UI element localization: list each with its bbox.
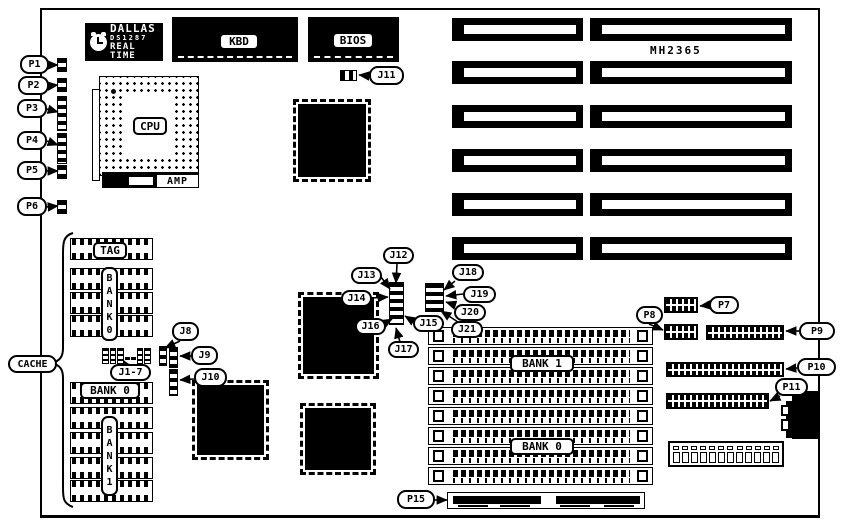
callout-j13: J13 <box>351 267 382 284</box>
p4-connector <box>57 133 67 164</box>
callout-p9: P9 <box>799 322 835 340</box>
amp-window <box>129 177 153 185</box>
memory-bank1-label: BANK 1 <box>510 355 574 372</box>
isa-slot-segment <box>590 105 792 128</box>
simm-pins <box>453 390 630 397</box>
p1-connector <box>57 58 67 72</box>
simm-latch <box>637 370 648 382</box>
callout-p11: P11 <box>775 378 808 396</box>
simm-latch <box>433 370 444 382</box>
cache-bank0-label: BANK 0 <box>80 382 140 399</box>
chip-pin1-dash <box>178 56 292 58</box>
rtc-chip: DALLAS DS1287 REAL TIME <box>85 23 163 61</box>
isa-slot-segment <box>452 193 583 216</box>
callout-j15: J15 <box>413 315 444 332</box>
memory-bank0-label: BANK 0 <box>510 438 574 455</box>
isa-slot-segment <box>590 193 792 216</box>
callout-p5: P5 <box>17 161 47 180</box>
power-connector <box>668 441 784 467</box>
jumper-cap <box>110 348 117 364</box>
callout-j10: J10 <box>194 368 227 387</box>
chip-pin1-dash <box>314 56 393 58</box>
j11-jumper <box>340 70 357 81</box>
isa-slot-segment <box>452 105 583 128</box>
pin1-marker <box>111 89 116 94</box>
callout-p3: P3 <box>17 99 47 118</box>
simm-latch <box>433 390 444 402</box>
simm-latch <box>433 350 444 362</box>
callout-j1_7: J1-7 <box>110 364 151 381</box>
amp-socket: AMP <box>102 172 199 188</box>
simm-pins <box>453 418 630 423</box>
callout-j11: J11 <box>369 66 404 85</box>
callout-cache: CACHE <box>8 355 57 373</box>
callout-j17: J17 <box>388 341 419 358</box>
jumper-open <box>131 357 136 360</box>
p3-connector <box>57 96 67 131</box>
p2-connector <box>57 78 67 92</box>
callout-p15: P15 <box>397 490 435 509</box>
simm-pins <box>453 398 630 403</box>
cpu-label: CPU <box>133 117 167 135</box>
rtc-model: DS1287 <box>110 35 161 42</box>
isa-slot-segment <box>590 149 792 172</box>
simm-pins <box>453 430 630 437</box>
p11-header <box>666 393 769 409</box>
bios-label: BIOS <box>332 32 374 49</box>
callout-p1: P1 <box>20 55 49 74</box>
qfp-chip-3 <box>197 385 264 455</box>
simm-socket <box>428 407 653 425</box>
simm-latch <box>433 450 444 462</box>
din-notch <box>781 405 790 416</box>
keyboard-controller-label: KBD <box>219 33 259 50</box>
simm-latch <box>433 470 444 482</box>
j10-jumper <box>169 369 178 396</box>
qfp-chip-4 <box>305 408 371 470</box>
jumper-open <box>125 357 130 360</box>
callout-j21: J21 <box>451 321 483 338</box>
simm-latch <box>637 330 648 342</box>
simm-pins <box>453 458 630 463</box>
callout-j14: J14 <box>341 290 372 307</box>
simm-latch <box>637 450 648 462</box>
p9-header <box>706 325 784 340</box>
simm-latch <box>637 350 648 362</box>
callout-j16: J16 <box>355 318 386 335</box>
callout-j9: J9 <box>191 346 218 365</box>
simm-pins <box>453 378 630 383</box>
simm-latch <box>433 430 444 442</box>
jumper-cap <box>137 348 144 364</box>
p7-header <box>664 297 698 313</box>
simm-latch <box>433 410 444 422</box>
isa-slot-segment <box>452 61 583 84</box>
callout-p4: P4 <box>17 131 47 150</box>
isa-slot-segment <box>452 18 583 41</box>
callout-j8: J8 <box>172 322 199 341</box>
cache-bank1-vertical-label: B A N K 1 <box>101 416 118 496</box>
cache-bank0-vertical-label: B A N K 0 <box>101 267 118 341</box>
qfp-chip-1 <box>298 104 366 177</box>
board-part-number: MH2365 <box>650 44 702 57</box>
simm-pins <box>453 478 630 483</box>
p8-header <box>664 324 698 340</box>
simm-socket <box>428 387 653 405</box>
keyboard-din-connector <box>792 391 820 439</box>
simm-latch <box>637 410 648 422</box>
p5-connector <box>57 165 67 179</box>
callout-p7: P7 <box>709 296 739 314</box>
j12-jumper-block <box>389 282 404 325</box>
jumper-cap <box>144 348 151 364</box>
j18-jumper-block <box>425 283 444 312</box>
clock-icon <box>90 34 107 51</box>
simm-pins <box>453 470 630 477</box>
qfp-chip-2 <box>303 297 374 374</box>
isa-slot-segment <box>590 18 792 41</box>
j8-jumper <box>159 346 167 366</box>
callout-p2: P2 <box>18 76 49 95</box>
simm-pins <box>453 338 630 343</box>
callout-p8: P8 <box>636 306 663 324</box>
j9-jumper <box>169 347 178 368</box>
din-notch <box>781 419 790 431</box>
simm-latch <box>637 430 648 442</box>
callout-j18: J18 <box>452 264 484 281</box>
rtc-brand: DALLAS <box>110 23 161 34</box>
isa-slot-segment <box>590 237 792 260</box>
callout-j12: J12 <box>383 247 414 264</box>
jumper-cap <box>117 348 124 364</box>
cache-tag-label: TAG <box>93 242 127 259</box>
rtc-type: REAL TIME <box>110 43 161 61</box>
amp-label: AMP <box>157 175 198 187</box>
callout-j19: J19 <box>463 286 496 303</box>
isa-slot-segment <box>590 61 792 84</box>
isa-slot-segment <box>452 149 583 172</box>
p6-connector <box>57 200 67 214</box>
simm-pins <box>453 410 630 417</box>
simm-latch <box>637 470 648 482</box>
callout-p10: P10 <box>797 358 836 376</box>
p15-edge-connector <box>447 492 645 509</box>
jumper-cap <box>102 348 109 364</box>
isa-slot-segment <box>452 237 583 260</box>
p10-header <box>666 362 784 377</box>
callout-j20: J20 <box>454 304 486 321</box>
j1-7-jumper-block <box>102 349 151 363</box>
simm-socket <box>428 467 653 485</box>
simm-latch <box>637 390 648 402</box>
callout-p6: P6 <box>17 197 47 216</box>
motherboard-layout-diagram: DALLAS DS1287 REAL TIME KBD BIOS CPU AMP… <box>0 0 844 527</box>
